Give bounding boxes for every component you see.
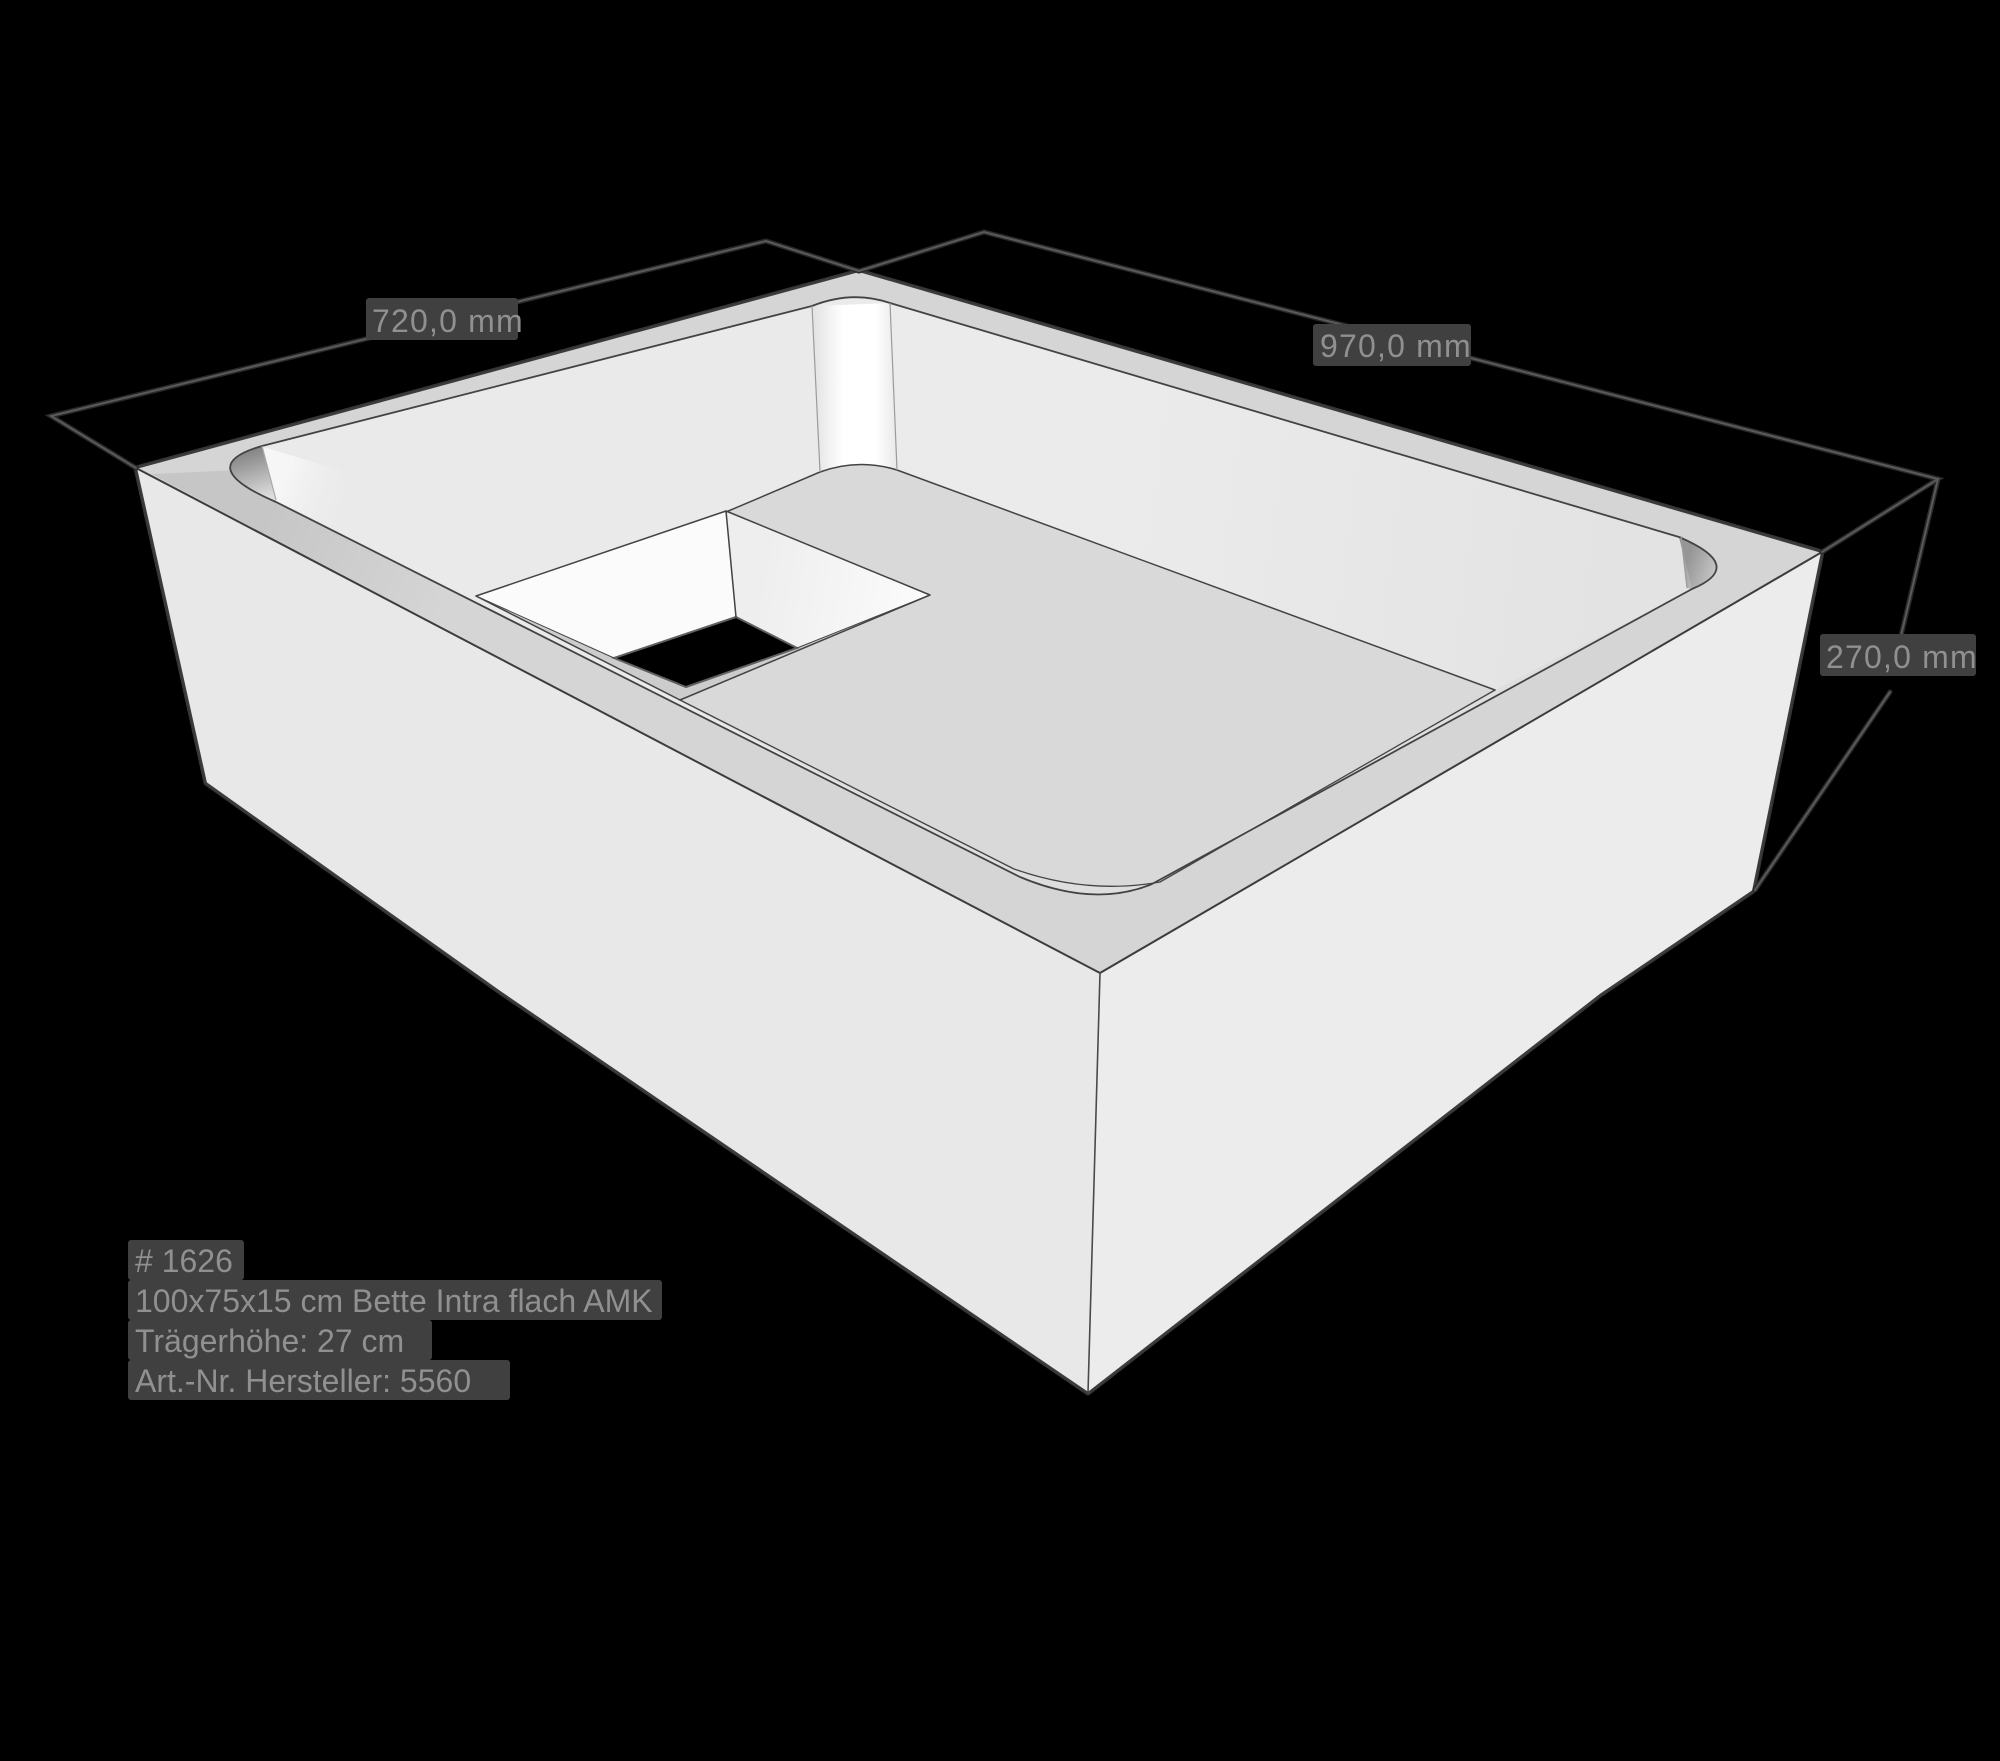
svg-text:Trägerhöhe: 27 cm: Trägerhöhe: 27 cm: [135, 1323, 404, 1359]
svg-text:# 1626: # 1626: [135, 1243, 233, 1279]
svg-text:720,0 mm: 720,0 mm: [372, 303, 524, 339]
svg-text:270,0 mm: 270,0 mm: [1826, 639, 1978, 675]
svg-text:100x75x15 cm Bette Intra flach: 100x75x15 cm Bette Intra flach AMK: [135, 1283, 653, 1319]
svg-text:Art.-Nr. Hersteller: 5560: Art.-Nr. Hersteller: 5560: [135, 1363, 471, 1399]
svg-text:970,0 mm: 970,0 mm: [1320, 328, 1472, 364]
